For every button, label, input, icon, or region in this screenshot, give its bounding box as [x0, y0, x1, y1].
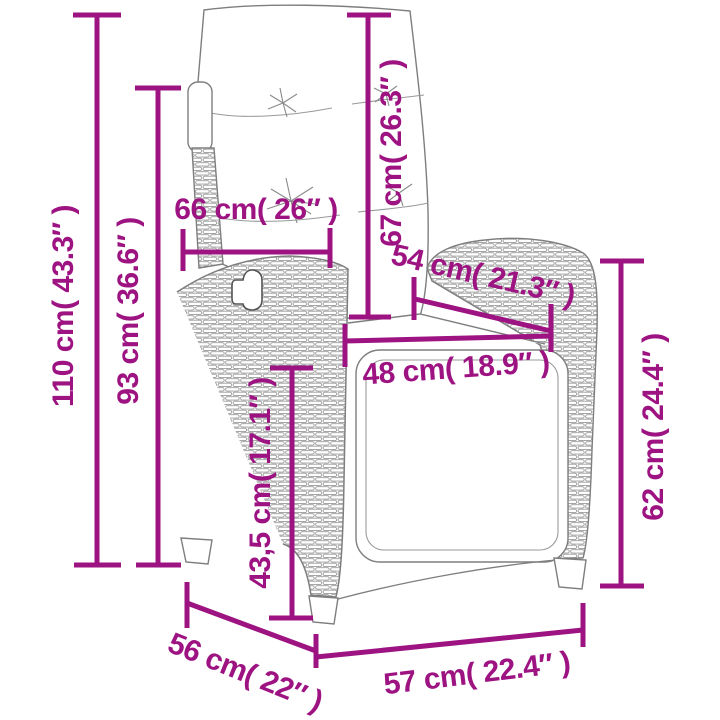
chair-leg-front-right: [554, 558, 586, 589]
measurement-label-backrest-width: 66 cm( 26″ ): [174, 195, 337, 225]
measurement-label-back-cushion-height: 67 cm( 26.3″ ): [377, 59, 407, 246]
chair-leg-front-left: [181, 538, 212, 564]
chair-line-art: [0, 0, 720, 720]
measurement-label-seat-height: 43,5 cm( 17.1″ ): [246, 377, 276, 589]
chair-leg-middle: [309, 596, 338, 624]
measurement-label-total-height: 110 cm( 43.3″ ): [49, 205, 79, 407]
product-dimension-diagram: 110 cm( 43.3″ ) 93 cm( 36.6″ ) 66 cm( 26…: [0, 0, 720, 720]
base-rail: [338, 560, 556, 599]
measurement-label-backrest-height: 93 cm( 36.6″ ): [114, 217, 144, 404]
measurement-label-armrest-height: 62 cm( 24.4″ ): [639, 333, 669, 520]
